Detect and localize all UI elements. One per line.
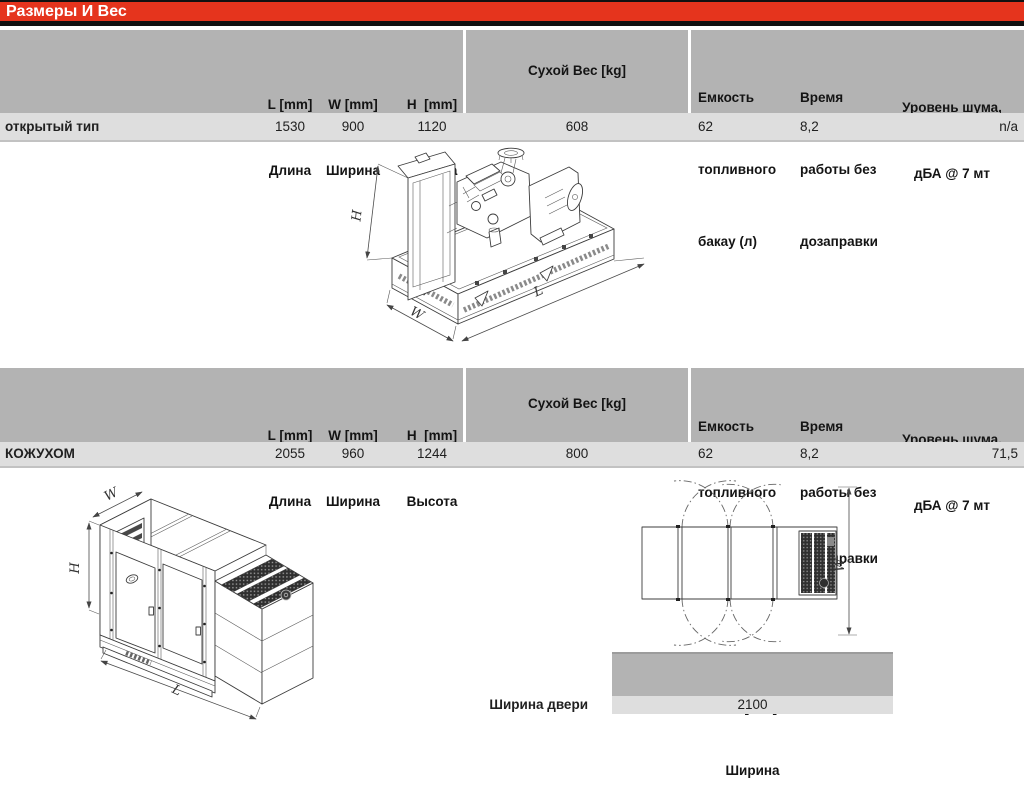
row-label: КОЖУХОМ bbox=[5, 442, 75, 466]
value-noise: n/a bbox=[920, 113, 1018, 140]
top-view-drawing: W bbox=[605, 478, 875, 656]
col-header-dry-weight: Сухой Вес [kg] bbox=[466, 63, 688, 78]
table-canopy-data-row: КОЖУХОМ 2055 960 1244 800 62 8,2 71,5 bbox=[0, 442, 1024, 468]
col-header-fuel-tank: Емкость топливного бакау (л) bbox=[698, 38, 808, 302]
dim-h-label: H bbox=[349, 209, 365, 223]
grille-strip bbox=[801, 533, 812, 593]
spec-sheet-page: Размеры И Вес L [mm] Длина W [mm] Ширина… bbox=[0, 0, 1024, 787]
title-bar: Размеры И Вес bbox=[0, 0, 1024, 26]
value-height: 1244 bbox=[388, 442, 476, 466]
row-label: открытый тип bbox=[5, 113, 99, 140]
grille-box bbox=[215, 545, 313, 704]
door-handle-1 bbox=[149, 607, 154, 615]
page-title: Размеры И Вес bbox=[6, 2, 127, 21]
dim-w-label: W bbox=[102, 484, 122, 504]
col-header-noise: Уровень шума, дБА @ 7 мт bbox=[872, 385, 1024, 561]
door-width-row-label: Ширина двери bbox=[420, 696, 588, 714]
dim-w-label: W bbox=[407, 304, 427, 324]
fan-circle bbox=[820, 579, 829, 588]
dim-h-canopy: H bbox=[68, 521, 99, 614]
value-noise: 71,5 bbox=[920, 442, 1018, 466]
value-fuel-tank: 62 bbox=[698, 113, 713, 140]
value-runtime: 8,2 bbox=[800, 442, 819, 466]
fan-circle bbox=[281, 590, 291, 600]
value-fuel-tank: 62 bbox=[698, 442, 713, 466]
door-width-header-cell: W [mm] Ширина bbox=[612, 652, 893, 698]
door-2 bbox=[163, 564, 202, 664]
door-1 bbox=[116, 552, 155, 653]
dim-l-label: L bbox=[168, 682, 183, 700]
table-open-data-row: открытый тип 1530 900 1120 608 62 8,2 n/… bbox=[0, 113, 1024, 142]
dim-h-open: H bbox=[349, 164, 408, 260]
value-runtime: 8,2 bbox=[800, 113, 819, 140]
col-header-dry-weight: Сухой Вес [kg] bbox=[466, 396, 688, 411]
dim-h-label: H bbox=[68, 562, 83, 575]
value-height: 1120 bbox=[388, 113, 476, 140]
door-handle-2 bbox=[196, 627, 201, 635]
open-genset-drawing: H bbox=[335, 140, 675, 358]
dim-w-label: W bbox=[833, 557, 848, 572]
col-header-height: H [mm] Высота bbox=[388, 381, 476, 557]
value-dry-weight: 608 bbox=[466, 113, 688, 140]
door-width-value: 2100 bbox=[612, 696, 893, 714]
dim-w-topview: W bbox=[833, 487, 857, 635]
title-bar-red bbox=[0, 2, 1024, 21]
canopy-genset-drawing: H W bbox=[62, 478, 342, 730]
value-width: 900 bbox=[310, 113, 396, 140]
value-width: 960 bbox=[310, 442, 396, 466]
value-dry-weight: 800 bbox=[466, 442, 688, 466]
